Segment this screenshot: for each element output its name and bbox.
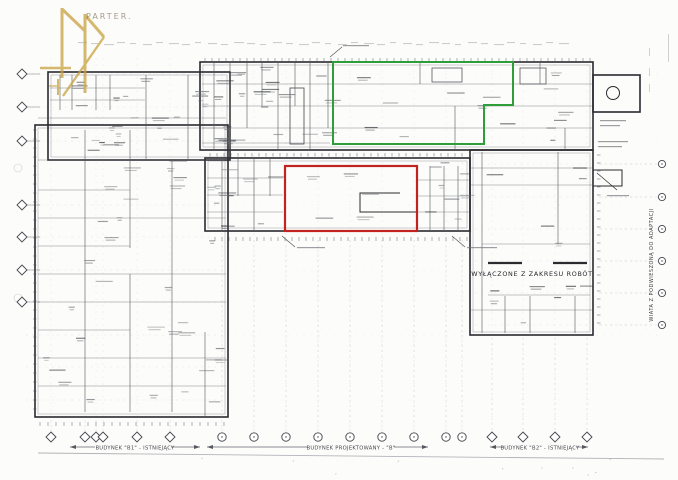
green-highlight-outline (333, 62, 513, 144)
structural-grid-lines (26, 58, 660, 432)
watermark-logo (40, 8, 104, 96)
building-b1-label: BUDYNEK "B1" - ISTNIEJĄCY (95, 446, 175, 452)
excluded-area-label: WYŁĄCZONE Z ZAKRESU ROBÓT (471, 269, 593, 278)
building-walls (35, 62, 640, 417)
scanned-floorplan: PARTER. WYŁĄCZONE Z ZAKRESU ROBÓT WIATA … (0, 0, 678, 480)
floorplan-drawing: PARTER. WYŁĄCZONE Z ZAKRESU ROBÓT WIATA … (0, 0, 678, 480)
red-highlight-outline (285, 166, 417, 231)
room-partitions (38, 62, 592, 417)
building-b2-label: BUDYNEK "B2" - ISTNIEJĄCY (500, 446, 580, 452)
building-projected-label: BUDYNEK PROJEKTOWANY - "B" (306, 446, 395, 452)
canopy-vertical-label: WIATA Z PODWIESZONĄ DO ADAPTACJI (649, 208, 655, 321)
floor-title: PARTER. (86, 12, 133, 21)
